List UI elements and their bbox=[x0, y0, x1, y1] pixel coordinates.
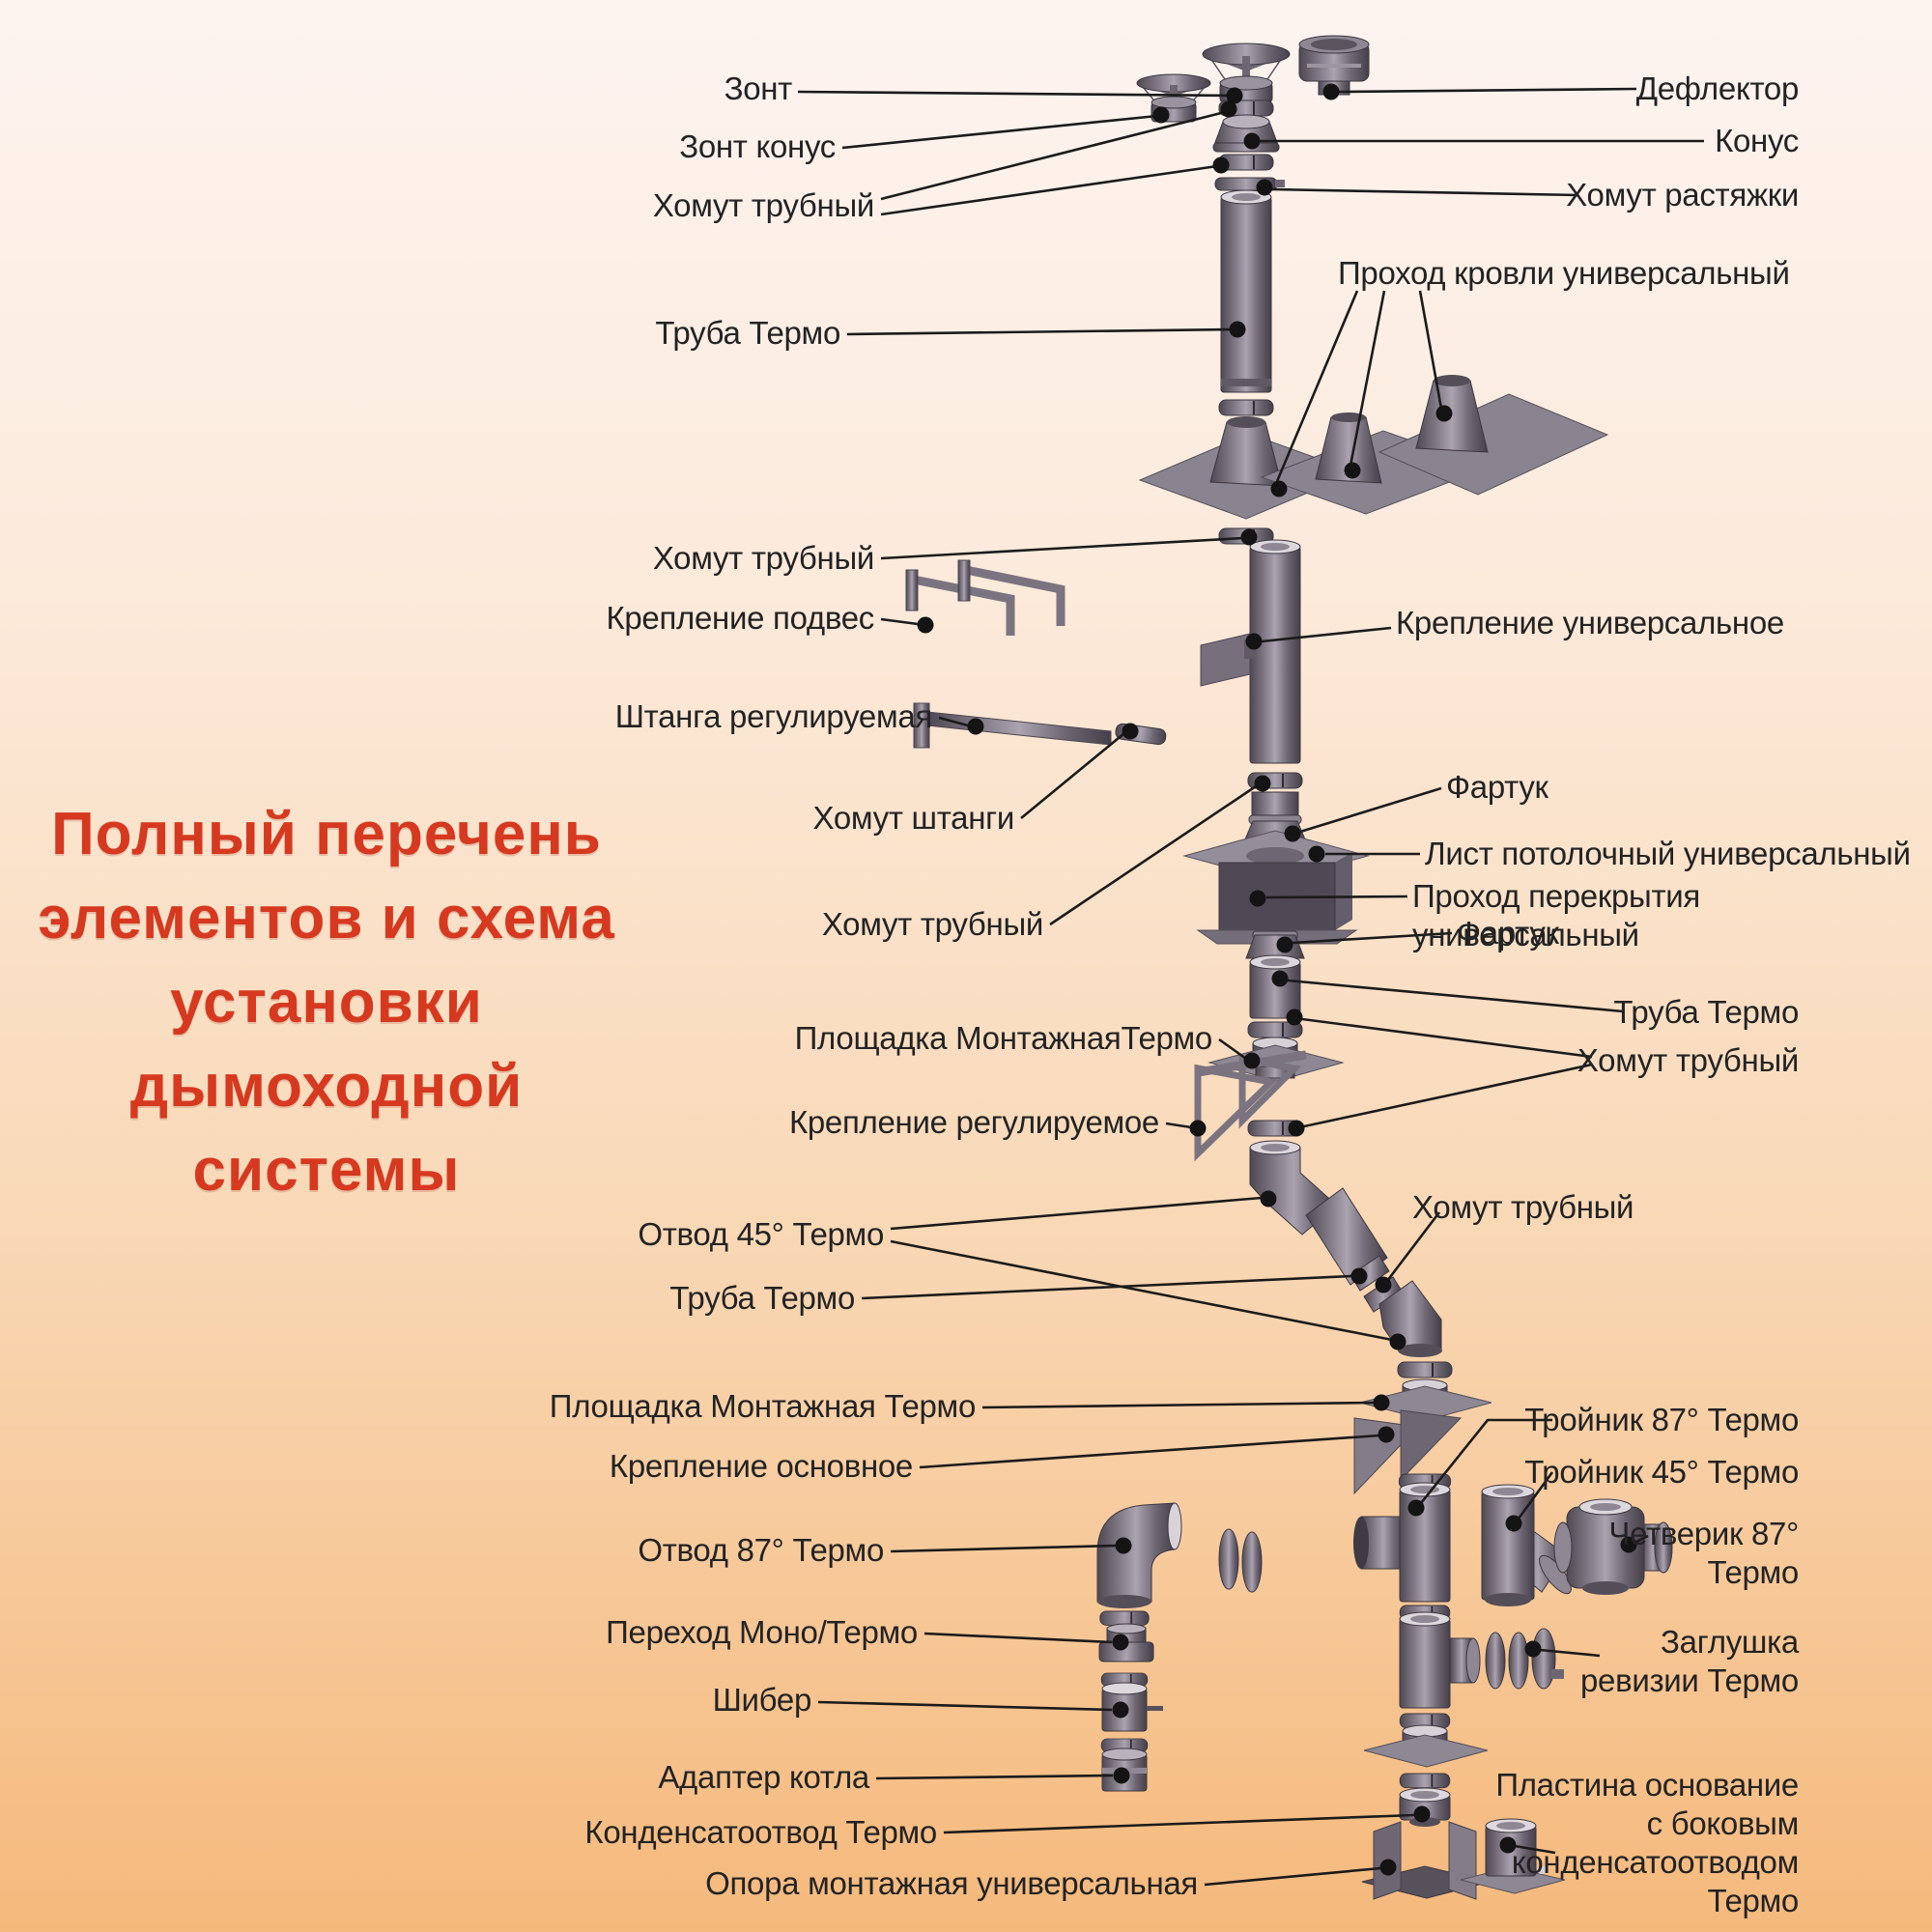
part-shiber-icon bbox=[1102, 1683, 1163, 1731]
part-truba-termo-mid-icon bbox=[1250, 540, 1300, 763]
label-chetverik-87-termo: Четверик 87° Термо bbox=[1608, 1515, 1799, 1592]
part-clamp bbox=[1100, 1611, 1149, 1625]
label-zaglushka-revizii-termo: Заглушка ревизии Термо bbox=[1580, 1623, 1799, 1700]
part-ploshchadka-montazhnaya-3-icon bbox=[1364, 1725, 1488, 1767]
part-troinik-reviziya-icon bbox=[1400, 1612, 1480, 1708]
label-homut-rastyazhki: Хомут растяжки bbox=[1566, 176, 1799, 214]
label-konus: Конус bbox=[1715, 122, 1799, 160]
part-clamp bbox=[1400, 1774, 1450, 1788]
label-fartuk-1: Фартук bbox=[1446, 768, 1548, 807]
part-zaglushka-revizii-icon bbox=[1486, 1629, 1564, 1689]
label-otvod-45-termo: Отвод 45° Термо bbox=[638, 1215, 884, 1254]
part-opora-montazhnaya-icon bbox=[1362, 1822, 1490, 1899]
label-deflektor: Дефлектор bbox=[1636, 70, 1799, 108]
part-zaglushka-discs-left-icon bbox=[1219, 1529, 1262, 1592]
part-truba-termo-top-icon bbox=[1221, 190, 1271, 392]
label-homut-trubny-right-2: Хомут трубный bbox=[1412, 1188, 1634, 1227]
part-shtanga-reguliruemaya-icon bbox=[914, 703, 1111, 748]
part-zont-icon bbox=[1203, 43, 1290, 102]
label-kondensatootvod-termo: Конденсатоотвод Термо bbox=[584, 1813, 937, 1852]
label-truba-termo-right: Труба Термо bbox=[1613, 993, 1799, 1032]
part-clamp bbox=[1398, 1362, 1452, 1378]
label-zont: Зонт bbox=[724, 70, 792, 108]
part-zont-konus-icon bbox=[1137, 74, 1210, 122]
label-kreplenie-universalnoe: Крепление универсальное bbox=[1396, 604, 1784, 642]
part-troinik87-icon bbox=[1353, 1483, 1450, 1602]
label-troinik-87-termo: Тройник 87° Термо bbox=[1524, 1401, 1799, 1439]
label-troinik-45-termo: Тройник 45° Термо bbox=[1524, 1453, 1799, 1492]
label-homut-trubny-1: Хомут трубный bbox=[653, 186, 874, 225]
label-homut-shtangi: Хомут штанги bbox=[813, 799, 1015, 838]
label-shiber: Шибер bbox=[713, 1681, 811, 1719]
part-otvod87-icon bbox=[1097, 1503, 1181, 1608]
label-perekhod-mono-termo: Переход Моно/Термо bbox=[606, 1613, 918, 1652]
label-kreplenie-osnovnoe: Крепление основное bbox=[610, 1447, 913, 1486]
leader-dots bbox=[918, 84, 1637, 1876]
label-ploshchadka-montazhnaya-termo-2: Площадка Монтажная Термо bbox=[550, 1387, 976, 1426]
label-homut-trubny-right-1: Хомут трубный bbox=[1577, 1041, 1799, 1080]
label-prohod-krovli-universalny: Проход кровли универсальный bbox=[1338, 254, 1790, 293]
label-opora-montazhnaya-universalnaya: Опора монтажная универсальная bbox=[705, 1864, 1198, 1903]
part-fartuk2-icon bbox=[1246, 931, 1304, 958]
label-zont-konus: Зонт конус bbox=[679, 128, 836, 166]
label-plastina-osnovanie: Пластина основание с боковым конденсатоо… bbox=[1495, 1766, 1799, 1920]
label-fartuk-2: Фартук bbox=[1457, 914, 1559, 952]
poster: Полный перечень элементов и схема устано… bbox=[0, 0, 1932, 1932]
label-truba-termo-2: Труба Термо bbox=[669, 1279, 855, 1318]
part-truba-termo-short-icon bbox=[1250, 955, 1300, 1018]
part-clamp bbox=[1219, 400, 1273, 415]
label-homut-trubny-3: Хомут трубный bbox=[822, 905, 1043, 944]
label-adapter-kotla: Адаптер котла bbox=[658, 1758, 869, 1797]
label-ploshchadka-montazhnaya-termo-1: Площадка МонтажнаяТермо bbox=[795, 1019, 1212, 1058]
label-list-potolochny-universalny: Лист потолочный универсальный bbox=[1425, 835, 1911, 873]
page-title: Полный перечень элементов и схема устано… bbox=[37, 792, 616, 1212]
label-kreplenie-podves: Крепление подвес bbox=[606, 599, 874, 638]
label-shtanga-reguliruemaya: Штанга регулируемая bbox=[615, 697, 932, 736]
label-homut-trubny-2: Хомут трубный bbox=[653, 539, 874, 578]
label-kreplenie-reguliruemoe: Крепление регулируемое bbox=[789, 1103, 1159, 1142]
label-otvod-87-termo: Отвод 87° Термо bbox=[638, 1531, 884, 1570]
label-truba-termo-1: Труба Термо bbox=[655, 314, 840, 353]
